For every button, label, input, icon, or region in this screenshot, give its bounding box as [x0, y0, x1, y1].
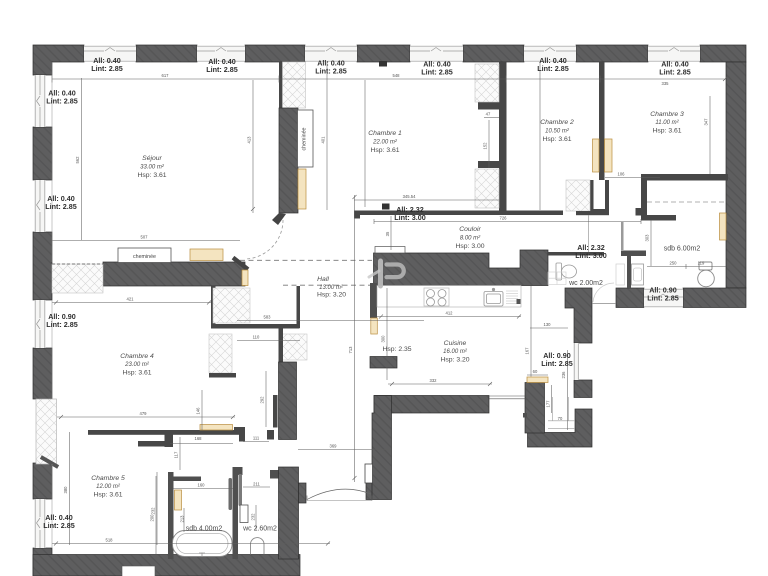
svg-text:Hsp: 3.20: Hsp: 3.20 — [317, 292, 346, 299]
svg-text:617: 617 — [162, 73, 170, 78]
svg-text:300: 300 — [381, 335, 386, 343]
svg-text:Hsp: 3.20: Hsp: 3.20 — [440, 357, 469, 364]
svg-text:130: 130 — [544, 322, 552, 327]
svg-text:Lint: 2.85: Lint: 2.85 — [43, 521, 75, 530]
svg-text:726: 726 — [500, 216, 508, 221]
svg-text:Hsp: 3.61: Hsp: 3.61 — [652, 128, 681, 135]
svg-text:Lint: 2.85: Lint: 2.85 — [46, 320, 78, 329]
svg-text:211: 211 — [253, 482, 260, 487]
svg-text:518: 518 — [106, 538, 114, 543]
svg-text:Lint: 2.85: Lint: 2.85 — [91, 64, 123, 73]
svg-text:548: 548 — [393, 73, 401, 78]
svg-text:22.00 m²: 22.00 m² — [372, 140, 398, 146]
svg-text:345.54: 345.54 — [403, 194, 416, 199]
svg-text:335: 335 — [662, 81, 670, 86]
svg-text:Chambre 5: Chambre 5 — [91, 475, 125, 482]
svg-text:Lint: 2.85: Lint: 2.85 — [206, 65, 238, 74]
svg-text:33.00 m²: 33.00 m² — [140, 165, 165, 171]
svg-text:10.50 m²: 10.50 m² — [545, 129, 570, 135]
svg-text:369: 369 — [330, 444, 338, 449]
svg-text:Lint: 2.85: Lint: 2.85 — [647, 294, 679, 303]
svg-text:Hsp: 3.61: Hsp: 3.61 — [370, 147, 399, 154]
svg-text:11.00 m²: 11.00 m² — [655, 120, 679, 126]
svg-text:Hsp: 3.61: Hsp: 3.61 — [542, 136, 571, 143]
svg-text:401: 401 — [321, 136, 326, 144]
svg-text:507: 507 — [141, 235, 149, 240]
svg-text:110: 110 — [253, 335, 260, 340]
svg-text:Chambre 1: Chambre 1 — [368, 130, 402, 137]
svg-text:Hall: Hall — [317, 276, 329, 283]
svg-text:Chambre 3: Chambre 3 — [650, 111, 684, 118]
svg-text:250: 250 — [670, 261, 678, 266]
svg-text:Cuisine: Cuisine — [444, 340, 467, 347]
svg-text:213: 213 — [180, 515, 185, 523]
svg-text:Séjour: Séjour — [142, 155, 162, 162]
svg-text:332: 332 — [430, 378, 438, 383]
svg-text:60: 60 — [533, 369, 538, 374]
svg-text:Hsp: 3.61: Hsp: 3.61 — [93, 492, 122, 499]
svg-text:713: 713 — [348, 346, 353, 354]
svg-text:Hsp: 3.61: Hsp: 3.61 — [137, 172, 166, 179]
svg-text:sdb 4.00m2: sdb 4.00m2 — [186, 526, 223, 533]
svg-text:106: 106 — [618, 172, 626, 177]
svg-text:cheminée: cheminée — [133, 254, 156, 260]
svg-text:583: 583 — [264, 315, 272, 320]
svg-text:Lint: 3.00: Lint: 3.00 — [575, 251, 607, 260]
svg-text:303: 303 — [645, 234, 650, 242]
svg-text:23.00 m²: 23.00 m² — [124, 362, 150, 368]
svg-text:Lint: 2.85: Lint: 2.85 — [659, 68, 691, 77]
svg-text:292: 292 — [260, 396, 265, 404]
svg-text:111: 111 — [253, 436, 260, 441]
svg-text:Couloir: Couloir — [459, 226, 481, 233]
svg-text:Lint: 2.85: Lint: 2.85 — [46, 97, 78, 106]
svg-text:8.00 m²: 8.00 m² — [460, 236, 481, 242]
svg-text:421: 421 — [127, 297, 135, 302]
svg-text:12.00 m²: 12.00 m² — [96, 484, 121, 490]
svg-text:Lint: 2.85: Lint: 2.85 — [541, 359, 573, 368]
svg-text:168: 168 — [195, 436, 203, 441]
svg-text:117: 117 — [174, 451, 179, 458]
svg-text:Lint: 2.85: Lint: 2.85 — [421, 68, 453, 77]
svg-text:562: 562 — [75, 156, 80, 164]
svg-text:413: 413 — [247, 136, 252, 144]
svg-text:119: 119 — [698, 261, 705, 266]
svg-text:cheminée: cheminée — [302, 127, 308, 150]
svg-text:Lint: 2.85: Lint: 2.85 — [537, 64, 569, 73]
svg-text:380: 380 — [63, 486, 68, 494]
svg-text:412: 412 — [446, 311, 454, 316]
svg-text:200: 200 — [150, 514, 155, 522]
svg-text:Lint: 2.85: Lint: 2.85 — [45, 202, 77, 211]
svg-text:Chambre 2: Chambre 2 — [540, 119, 574, 126]
svg-text:146: 146 — [196, 407, 201, 415]
svg-text:479: 479 — [140, 411, 148, 416]
svg-text:232: 232 — [151, 507, 156, 515]
svg-text:13.00 m²: 13.00 m² — [319, 285, 344, 291]
svg-text:70: 70 — [558, 416, 563, 421]
svg-text:152: 152 — [483, 142, 488, 150]
svg-text:Hsp: 2.35: Hsp: 2.35 — [382, 346, 411, 353]
svg-text:Lint: 3.00: Lint: 3.00 — [394, 213, 426, 222]
svg-text:347: 347 — [704, 118, 709, 126]
svg-text:16.00 m²: 16.00 m² — [443, 349, 468, 355]
svg-text:47: 47 — [486, 112, 491, 117]
svg-text:160: 160 — [198, 483, 206, 488]
svg-text:Lint: 2.85: Lint: 2.85 — [315, 67, 347, 76]
svg-text:177: 177 — [546, 400, 551, 408]
svg-text:236: 236 — [561, 371, 566, 379]
svg-text:Hsp: 3.61: Hsp: 3.61 — [122, 370, 151, 377]
svg-text:wc 2.60m2: wc 2.60m2 — [242, 526, 277, 533]
svg-text:Hsp: 3.00: Hsp: 3.00 — [455, 243, 484, 250]
svg-text:232: 232 — [251, 513, 256, 521]
svg-text:wc 2.00m2: wc 2.00m2 — [568, 280, 603, 287]
svg-text:sdb 6.00m2: sdb 6.00m2 — [664, 246, 701, 253]
svg-text:167: 167 — [525, 347, 530, 355]
svg-text:Chambre 4: Chambre 4 — [120, 353, 154, 360]
svg-text:35: 35 — [385, 231, 390, 236]
